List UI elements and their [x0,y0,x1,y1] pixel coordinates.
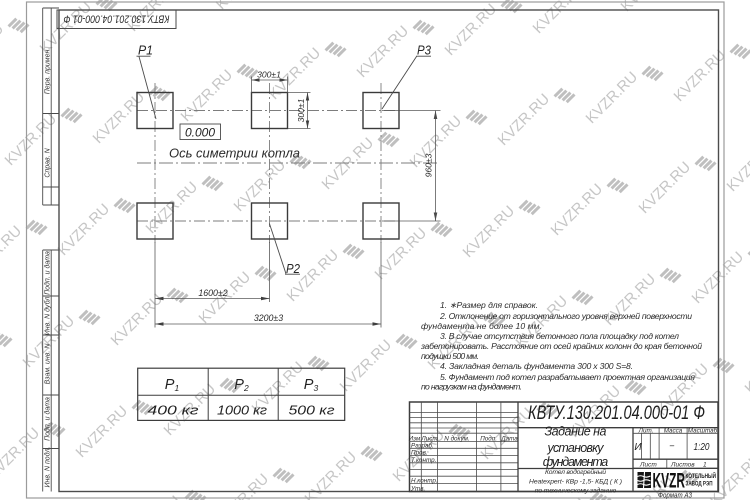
svg-text:фундамента не более 10 мм.: фундамента не более 10 мм. [421,321,542,331]
svg-text:Масштаб: Масштаб [688,427,718,435]
svg-text:–: – [669,441,675,450]
svg-text:Инв. N дубл.: Инв. N дубл. [44,295,52,336]
svg-text:KVZR.RU: KVZR.RU [530,0,589,37]
svg-text:КВТУ.130.201.04.000-01 Ф: КВТУ.130.201.04.000-01 Ф [63,13,169,25]
svg-text:Справ. N: Справ. N [45,147,52,177]
svg-text:P1: P1 [138,43,153,58]
svg-text:Лит.: Лит. [638,428,654,435]
svg-text:KVZR.RU: KVZR.RU [214,471,273,500]
svg-text:KVZR.RU: KVZR.RU [73,403,132,462]
svg-text:Лист: Лист [639,461,657,468]
svg-text:установку: установку [547,441,605,455]
svg-text:KVZR.RU: KVZR.RU [548,181,607,240]
svg-text:KVZR.RU: KVZR.RU [460,203,519,262]
svg-text:N докум.: N докум. [444,435,469,443]
svg-text:подушки 500 мм.: подушки 500 мм. [421,351,479,361]
svg-text:фундамента: фундамента [543,455,609,469]
svg-text:KVZR.RU: KVZR.RU [231,157,290,216]
svg-text:KVZR.RU: KVZR.RU [742,339,750,398]
svg-text:И: И [634,442,642,453]
svg-text:KVZR.RU: KVZR.RU [495,91,554,150]
svg-text:KVZR.RU: KVZR.RU [126,493,185,500]
svg-text:KVZR.RU: KVZR.RU [724,137,750,196]
svg-text:1. ∗Размер для справок.: 1. ∗Размер для справок. [440,300,538,310]
svg-text:KVZR.RU: KVZR.RU [337,337,396,396]
svg-text:по нагрузкам на фундамент.: по нагрузкам на фундамент. [421,382,522,392]
svg-text:KVZR.RU: KVZR.RU [372,225,431,284]
svg-text:Листов: Листов [670,461,695,468]
svg-text:Взам. инв. N: Взам. инв. N [45,343,52,385]
svg-text:Heatexpert- КВр -1,5- КБД ( К: Heatexpert- КВр -1,5- КБД ( К ) [529,479,622,486]
svg-text:Инв. N подл.: Инв. N подл. [44,446,52,487]
svg-text:P2: P2 [234,377,249,393]
svg-text:Задание на: Задание на [545,425,607,439]
svg-text:KVZR.RU: KVZR.RU [143,179,202,238]
svg-text:Котел водогрейный: Котел водогрейный [545,468,606,476]
svg-text:KVZR.RU: KVZR.RU [90,89,149,148]
svg-text:KVZR.RU: KVZR.RU [636,159,695,218]
svg-text:3. В случае отсутствия бетонно: 3. В случае отсутствия бетонного пола пл… [440,331,679,341]
svg-text:400 кг: 400 кг [148,404,199,418]
svg-text:1: 1 [703,461,707,468]
svg-text:Подп. и дата: Подп. и дата [44,397,52,441]
svg-text:3200±3: 3200±3 [254,313,283,323]
svg-text:Формат А3: Формат А3 [658,493,692,500]
svg-text:KVZR.RU: KVZR.RU [284,247,343,306]
svg-text:KVZR.RU: KVZR.RU [531,495,590,500]
svg-text:1600±2: 1600±2 [198,288,227,298]
svg-text:КОТЕЛЬНЫЙ: КОТЕЛЬНЫЙ [686,472,717,480]
svg-text:4. Закладная деталь фундамента: 4. Закладная деталь фундамента 300 x 300… [440,361,633,371]
svg-text:KVZR.RU: KVZR.RU [0,223,25,282]
svg-text:5. Фундамент под котел разраба: 5. Фундамент под котел разрабатывает про… [440,372,695,382]
svg-text:KVZR.RU: KVZR.RU [671,47,730,106]
svg-text:KVZR.RU: KVZR.RU [319,135,378,194]
svg-text:Ось симетрии котла: Ось симетрии котла [169,146,300,161]
svg-text:P1: P1 [165,377,180,393]
svg-text:2. Отклонение от горизонтально: 2. Отклонение от горизонтального уровня … [439,311,692,321]
svg-text:Н.контр.: Н.контр. [411,478,438,485]
svg-text:960±3: 960±3 [424,153,434,177]
svg-text:1000 кг: 1000 кг [217,404,267,418]
svg-text:Подп.: Подп. [480,435,497,443]
svg-text:KVZR.RU: KVZR.RU [302,449,361,500]
svg-text:1:20: 1:20 [694,441,710,453]
svg-text:забетонировать. Расстояние от: забетонировать. Расстояние от осей крайн… [420,341,702,351]
svg-text:P2: P2 [286,261,300,276]
svg-text:Разраб.: Разраб. [411,441,434,449]
svg-text:KVZR.RU: KVZR.RU [108,291,167,350]
svg-text:Подп. и дата: Подп. и дата [44,251,52,295]
svg-text:KVZR.RU: KVZR.RU [0,425,43,484]
svg-text:KVZR.RU: KVZR.RU [0,21,7,80]
svg-text:0.000: 0.000 [185,125,215,139]
svg-text:KVZR.RU: KVZR.RU [583,69,642,128]
svg-text:по техническому заданию: по техническому заданию [535,487,617,495]
svg-text:КВТУ.130.201.04.000-01 Ф: КВТУ.130.201.04.000-01 Ф [528,403,705,424]
svg-text:KVZR.RU: KVZR.RU [178,67,237,126]
svg-text:300±1: 300±1 [257,70,281,80]
svg-text:KVZR.RU: KVZR.RU [55,201,114,260]
svg-text:P3: P3 [304,377,319,393]
svg-text:Масса: Масса [664,428,683,435]
svg-text:ЗАВОД РЭП: ЗАВОД РЭП [686,481,713,488]
svg-text:300±1: 300±1 [296,98,306,122]
svg-text:Утв.: Утв. [410,485,425,492]
svg-text:500 кг: 500 кг [289,404,335,418]
svg-text:KVZR.RU: KVZR.RU [354,23,413,82]
svg-text:KVZR: KVZR [653,470,686,493]
svg-text:Дата: Дата [500,436,518,443]
svg-text:Пров.: Пров. [411,450,428,457]
svg-text:Т.контр.: Т.контр. [411,457,436,464]
svg-text:P3: P3 [417,43,431,58]
svg-text:Перв. примен.: Перв. примен. [45,48,52,95]
